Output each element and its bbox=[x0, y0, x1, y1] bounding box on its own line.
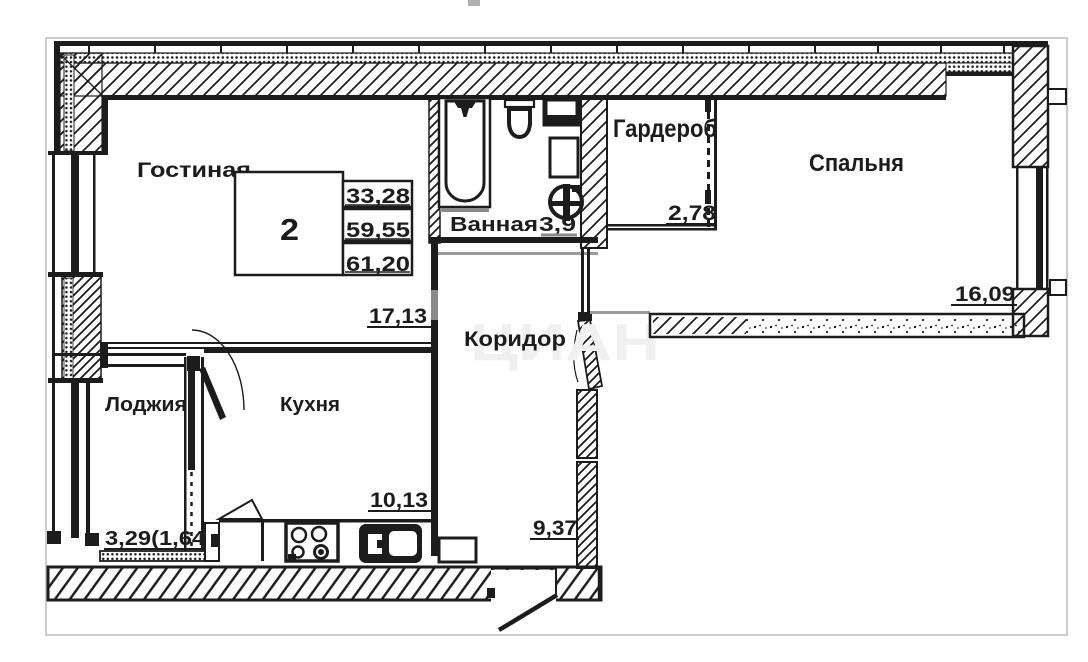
svg-text:Ванная: Ванная bbox=[450, 214, 538, 236]
svg-text:3,29(1,64): 3,29(1,64) bbox=[105, 528, 213, 550]
svg-text:Спальня: Спальня bbox=[809, 150, 904, 177]
svg-text:16,09: 16,09 bbox=[955, 283, 1015, 306]
svg-text:Кухня: Кухня bbox=[280, 394, 340, 416]
svg-text:Коридор: Коридор bbox=[464, 328, 566, 351]
svg-text:Лоджия: Лоджия bbox=[105, 394, 187, 416]
svg-text:Гардероб: Гардероб bbox=[613, 115, 717, 143]
svg-text:9,37: 9,37 bbox=[533, 517, 577, 540]
svg-text:10,13: 10,13 bbox=[370, 489, 428, 512]
svg-text:17,13: 17,13 bbox=[369, 305, 427, 328]
svg-text:2: 2 bbox=[280, 212, 299, 247]
